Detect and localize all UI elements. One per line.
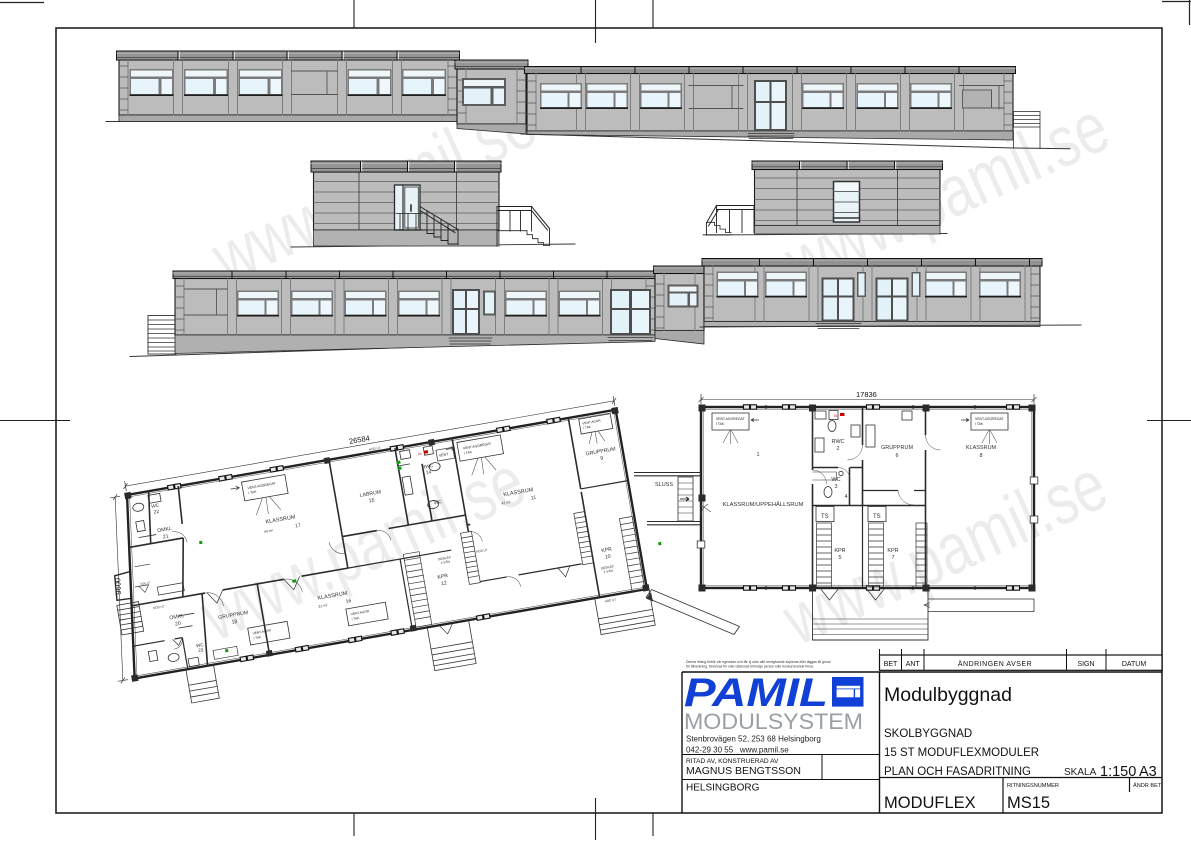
svg-text:SKOLBYGGNAD: SKOLBYGGNAD (884, 728, 972, 740)
svg-text:KLASSRUM: KLASSRUM (966, 445, 997, 451)
svg-text:EL: EL (834, 414, 838, 418)
svg-text:Stenbrovägen 52, 253 68 Helsin: Stenbrovägen 52, 253 68 Helsingborg (686, 735, 821, 744)
svg-text:KLASSRUM/UPPEHÅLLSRUM: KLASSRUM/UPPEHÅLLSRUM (723, 501, 804, 508)
svg-text:WC: WC (831, 477, 840, 483)
svg-text:17836: 17836 (856, 390, 877, 399)
svg-text:GRUPPRUM: GRUPPRUM (881, 445, 914, 451)
svg-text:ANT: ANT (906, 661, 921, 668)
svg-text:MAGNUS BENGTSSON: MAGNUS BENGTSSON (686, 765, 801, 777)
svg-text:RITAD AV, KONSTRUERAD AV: RITAD AV, KONSTRUERAD AV (686, 758, 779, 765)
svg-text:RITNINGSNUMMER: RITNINGSNUMMER (1007, 783, 1059, 789)
svg-text:10: 10 (605, 554, 612, 561)
svg-text:ÄNDRINGEN AVSER: ÄNDRINGEN AVSER (958, 660, 1032, 668)
svg-text:TS: TS (821, 514, 829, 520)
svg-text:7: 7 (891, 555, 894, 561)
svg-text:Modulbyggnad: Modulbyggnad (884, 684, 1012, 706)
svg-text:SLUSS: SLUSS (655, 482, 673, 488)
svg-text:8: 8 (979, 453, 982, 459)
svg-text:4: 4 (844, 494, 847, 500)
svg-text:20: 20 (175, 621, 182, 628)
svg-text:MODULSYSTEM: MODULSYSTEM (684, 709, 863, 734)
svg-text:TS: TS (873, 514, 881, 520)
svg-text:KPR: KPR (834, 548, 845, 554)
svg-text:HELSINGBORG: HELSINGBORG (686, 783, 760, 794)
svg-text:PLAN OCH FASADRITNING: PLAN OCH FASADRITNING (884, 766, 1031, 778)
svg-text:15 ST MODUFLEXMODULER: 15 ST MODUFLEXMODULER (884, 747, 1039, 759)
svg-text:Denna ritning förblir vår egen: Denna ritning förblir vår egendom och få… (686, 660, 831, 664)
svg-text:042-29 30 55 www.pamil.se: 042-29 30 55 www.pamil.se (686, 746, 789, 755)
svg-text:6: 6 (895, 453, 898, 459)
svg-text:för tillverkning, förevisas fö: för tillverkning, förevisas för eller ut… (686, 665, 814, 669)
svg-text:VENT.AGGREGAT: VENT.AGGREGAT (975, 417, 1004, 421)
svg-text:SKALA: SKALA (1064, 767, 1097, 778)
svg-text:VENT.AGGREGAT: VENT.AGGREGAT (716, 417, 745, 421)
svg-text:1: 1 (756, 452, 759, 458)
svg-text:KPR: KPR (887, 548, 898, 554)
svg-text:15: 15 (368, 498, 375, 505)
svg-text:12: 12 (441, 580, 448, 587)
svg-text:MS15: MS15 (1007, 794, 1050, 812)
svg-text:ÄNDR BET: ÄNDR BET (1133, 782, 1162, 789)
svg-text:SIGN: SIGN (1077, 661, 1094, 668)
svg-text:5: 5 (838, 555, 841, 561)
svg-text:RWC: RWC (831, 439, 844, 445)
svg-text:18: 18 (231, 619, 238, 626)
svg-text:BET: BET (884, 661, 898, 668)
svg-text:I TAK: I TAK (716, 422, 725, 426)
svg-text:3: 3 (834, 484, 837, 490)
svg-text:I TAK: I TAK (975, 422, 984, 426)
svg-text:MODUFLEX: MODUFLEX (884, 794, 976, 812)
svg-text:DATUM: DATUM (1122, 661, 1147, 668)
svg-text:21: 21 (162, 533, 169, 540)
svg-text:2: 2 (836, 446, 839, 452)
